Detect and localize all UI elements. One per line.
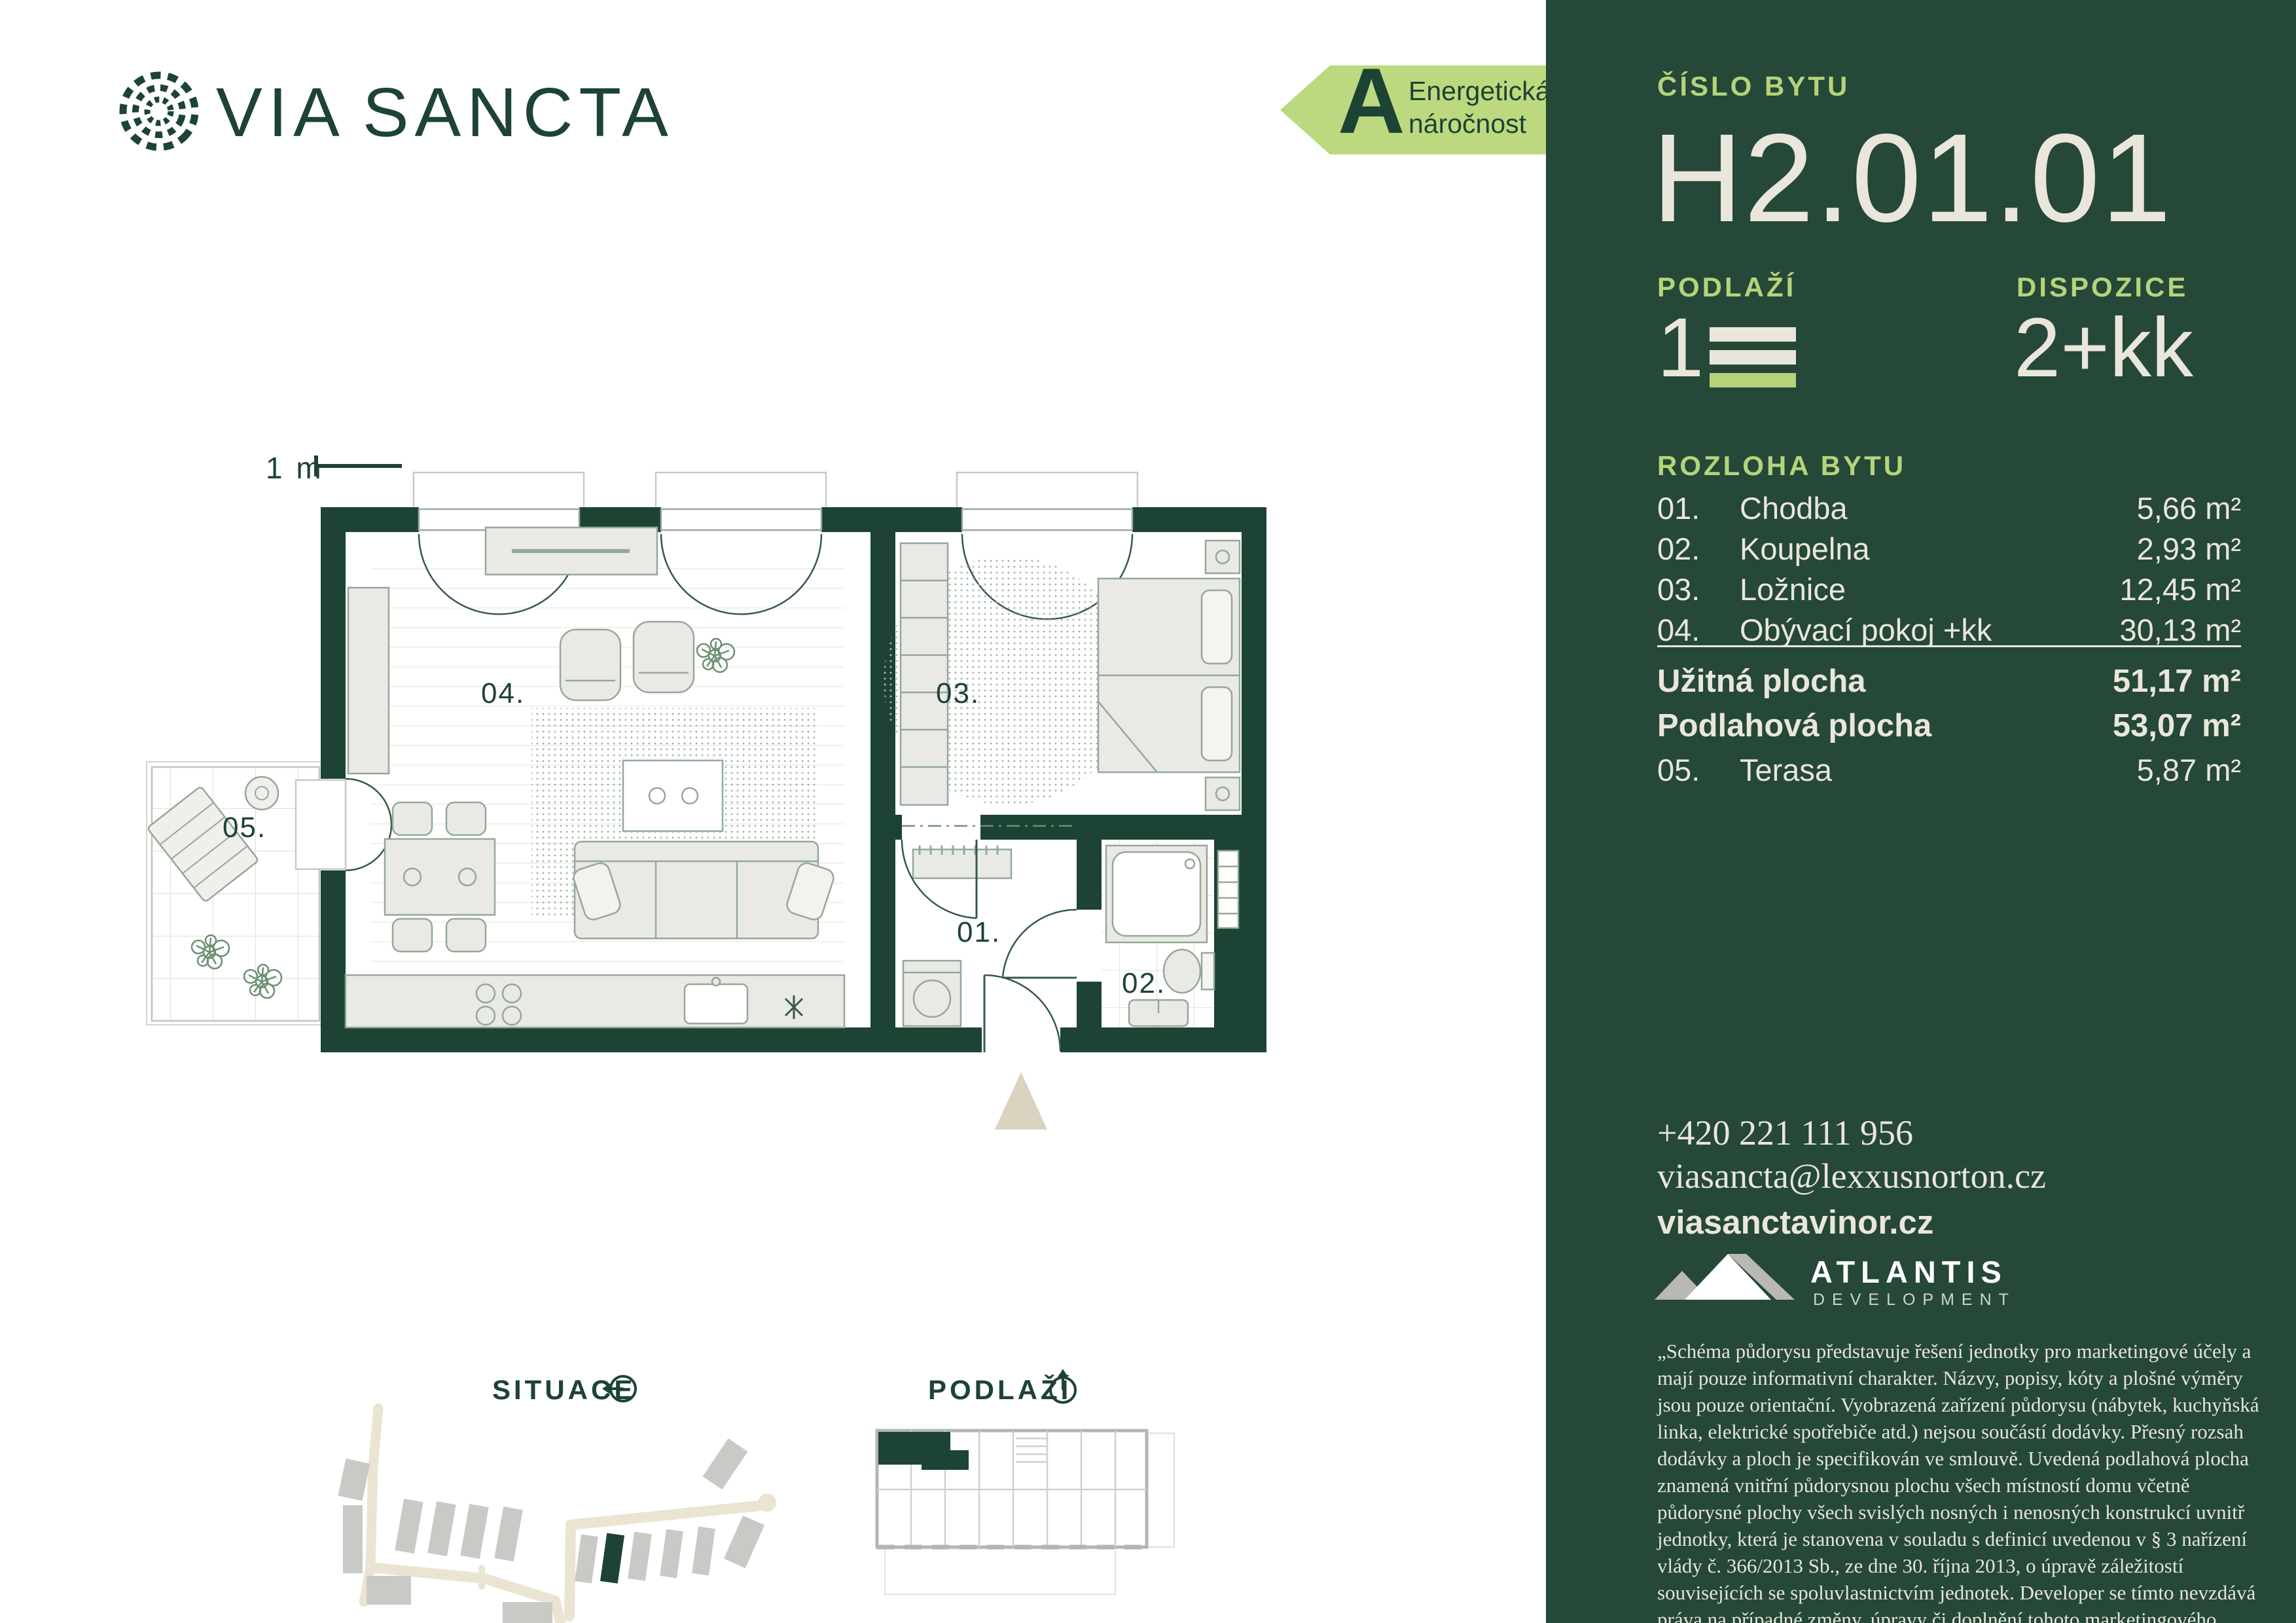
row-area: 5,87 m² <box>2137 751 2241 789</box>
disclaimer-text: „Schéma půdorysu představuje řešení jedn… <box>1657 1338 2259 1623</box>
situace-caption: SITUACE <box>492 1374 636 1406</box>
area-row-obyvaci: 04. Obývací pokoj +kk 30,13 m² <box>1657 611 2241 649</box>
row-num: 03. <box>1657 571 1700 609</box>
energy-label-line1: Energetická <box>1408 76 1551 107</box>
contact-website[interactable]: viasanctavinor.cz <box>1657 1203 1933 1241</box>
logo-wordmark: VIASANCTA <box>216 73 674 152</box>
wardrobe <box>901 543 948 805</box>
bedroom <box>884 541 1240 810</box>
divider-rule <box>1657 645 2241 647</box>
floor-level-icon <box>1710 327 1796 396</box>
developer-name: ATLANTIS <box>1810 1254 2007 1290</box>
area-row-koupelna: 02. Koupelna 2,93 m² <box>1657 530 2241 568</box>
room-label-01: 01. <box>957 916 1001 949</box>
room-label-02: 02. <box>1122 967 1166 1000</box>
row-area: 12,45 m² <box>2120 571 2241 609</box>
row-area: 5,66 m² <box>2137 490 2241 527</box>
podlazi-caption: PODLAŽÍ <box>928 1374 1071 1406</box>
situace-highlight-building <box>600 1533 624 1584</box>
room-label-04: 04. <box>481 677 525 710</box>
floor-plan <box>147 473 1266 1130</box>
total-area: 53,07 m² <box>2113 707 2241 745</box>
row-name: Koupelna <box>1740 530 1870 568</box>
row-num: 02. <box>1657 530 1700 568</box>
atlantis-logo-icon <box>1655 1249 1805 1309</box>
area-row-chodba: 01. Chodba 5,66 m² <box>1657 490 2241 527</box>
layout-value: 2+kk <box>2014 306 2193 390</box>
row-name: Ložnice <box>1740 571 1846 609</box>
flyer-page: VIASANCTA A Energetická náročnost 1 m 04… <box>0 0 2296 1623</box>
row-area: 30,13 m² <box>2120 611 2241 649</box>
logo-sancta: SANCTA <box>363 74 674 151</box>
situace-map <box>338 1408 776 1623</box>
area-row-terasa: 05. Terasa 5,87 m² <box>1657 751 2241 789</box>
toilet <box>1164 950 1200 993</box>
total-row-podlahova: Podlahová plocha 53,07 m² <box>1657 707 2241 745</box>
row-area: 2,93 m² <box>2137 530 2241 568</box>
row-num: 04. <box>1657 611 1700 649</box>
areas-label: ROZLOHA BYTU <box>1657 450 1906 482</box>
room-label-05: 05. <box>223 811 266 844</box>
logo-via: VIA <box>216 74 346 151</box>
scale-bar <box>316 455 402 476</box>
scale-label: 1 m <box>266 450 324 486</box>
towel-radiator <box>1218 851 1238 928</box>
room-label-03: 03. <box>936 677 980 710</box>
row-name: Chodba <box>1740 490 1848 527</box>
logo-icon <box>109 61 210 162</box>
total-name: Užitná plocha <box>1657 662 1866 700</box>
unit-number: H2.01.01 <box>1652 115 2172 241</box>
total-name: Podlahová plocha <box>1657 707 1931 745</box>
contact-email[interactable]: viasancta@lexxusnorton.cz <box>1657 1156 2046 1196</box>
window-reveals <box>414 473 1138 509</box>
energy-label-line2: náročnost <box>1408 109 1526 139</box>
entrance-arrow <box>995 1072 1047 1130</box>
total-row-uzitna: Užitná plocha 51,17 m² <box>1657 662 2241 700</box>
energy-grade: A <box>1338 55 1405 148</box>
terrace-table <box>245 777 278 810</box>
layout-label: DISPOZICE <box>2017 272 2188 303</box>
floor-value: 1 <box>1657 306 1704 390</box>
contact-phone[interactable]: +420 221 111 956 <box>1657 1113 1913 1153</box>
sidebar: ČÍSLO BYTU H2.01.01 PODLAŽÍ 1 DISPOZICE … <box>1546 0 2296 1623</box>
floor-label: PODLAŽÍ <box>1657 272 1796 303</box>
row-name: Obývací pokoj +kk <box>1740 611 1992 649</box>
row-name: Terasa <box>1740 751 1832 789</box>
nightstand <box>1206 777 1240 810</box>
kitchen <box>346 961 961 1027</box>
developer-subtitle: DEVELOPMENT <box>1813 1291 2016 1310</box>
total-area: 51,17 m² <box>2113 662 2241 700</box>
area-row-loznice: 03. Ložnice 12,45 m² <box>1657 571 2241 609</box>
floor-bar-3 <box>1710 327 1796 342</box>
nightstand <box>1206 541 1240 573</box>
podlazi-miniplan <box>877 1431 1174 1594</box>
unit-number-label: ČÍSLO BYTU <box>1657 71 1850 102</box>
floor-bar-1 <box>1710 373 1796 387</box>
row-num: 01. <box>1657 490 1700 527</box>
row-num: 05. <box>1657 751 1700 789</box>
floor-bar-2 <box>1710 350 1796 365</box>
